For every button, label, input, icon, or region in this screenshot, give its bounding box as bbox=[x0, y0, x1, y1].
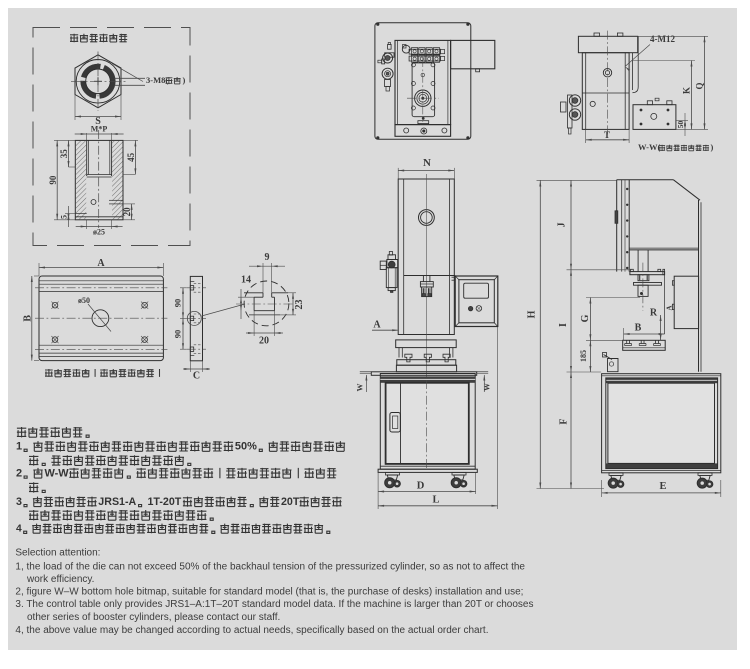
svg-text:23: 23 bbox=[294, 300, 305, 310]
svg-text:W-W: W-W bbox=[45, 467, 70, 479]
svg-text:4: 4 bbox=[16, 524, 22, 535]
svg-text:C: C bbox=[193, 370, 200, 381]
svg-text:1T-20T: 1T-20T bbox=[148, 496, 182, 508]
svg-text:A: A bbox=[666, 305, 674, 310]
svg-text:K: K bbox=[682, 87, 692, 94]
svg-text:90: 90 bbox=[172, 330, 182, 339]
svg-text:H: H bbox=[526, 310, 537, 318]
svg-text:T: T bbox=[604, 130, 610, 140]
svg-text:50: 50 bbox=[676, 121, 685, 129]
svg-text:90: 90 bbox=[48, 175, 58, 185]
svg-text:R: R bbox=[650, 307, 658, 318]
svg-text:3: 3 bbox=[16, 496, 22, 508]
svg-text:20: 20 bbox=[122, 207, 132, 217]
svg-text:20: 20 bbox=[259, 335, 269, 346]
svg-text:B: B bbox=[23, 315, 34, 322]
svg-text:D: D bbox=[417, 480, 425, 491]
svg-text:35: 35 bbox=[59, 149, 69, 159]
svg-text:A: A bbox=[373, 320, 381, 331]
svg-text:45: 45 bbox=[126, 152, 136, 162]
svg-text:3-M8(: 3-M8( bbox=[146, 75, 168, 85]
svg-text:2: 2 bbox=[16, 467, 22, 479]
svg-text:185: 185 bbox=[579, 350, 588, 362]
svg-text:other series of booster cylind: other series of booster cylinders, pleas… bbox=[27, 612, 280, 623]
svg-text:F: F bbox=[558, 418, 569, 424]
svg-text:9: 9 bbox=[265, 252, 270, 263]
svg-text:B: B bbox=[635, 323, 642, 334]
svg-text:3. The control table only prov: 3. The control table only provides JRS1–… bbox=[15, 599, 533, 610]
svg-text:1, the load of the die can not: 1, the load of the die can not exceed 50… bbox=[15, 562, 525, 573]
svg-text:W-W(: W-W( bbox=[638, 142, 661, 152]
svg-text:W: W bbox=[355, 384, 364, 392]
svg-text:ø50: ø50 bbox=[78, 296, 90, 305]
svg-text:Q: Q bbox=[695, 82, 705, 89]
svg-text:4, the above value may be chan: 4, the above value may be changed accord… bbox=[15, 625, 488, 636]
svg-text:5: 5 bbox=[59, 215, 68, 219]
svg-text:): ) bbox=[711, 142, 714, 152]
svg-text:Selection attention:: Selection attention: bbox=[15, 548, 100, 559]
svg-text:JRS1-A: JRS1-A bbox=[98, 496, 136, 508]
svg-text:work efficiency.: work efficiency. bbox=[26, 574, 94, 585]
svg-text:14: 14 bbox=[241, 274, 251, 285]
svg-text:M*P: M*P bbox=[91, 125, 108, 134]
svg-text:20T: 20T bbox=[281, 496, 300, 508]
svg-text:W: W bbox=[482, 383, 491, 391]
svg-text:J: J bbox=[556, 223, 567, 228]
svg-text:4-M12: 4-M12 bbox=[650, 34, 675, 44]
svg-text:ø25: ø25 bbox=[93, 227, 105, 236]
svg-text:G: G bbox=[580, 314, 591, 322]
svg-text:50%: 50% bbox=[235, 441, 257, 453]
svg-text:A: A bbox=[97, 258, 105, 269]
svg-text:L: L bbox=[432, 495, 439, 506]
svg-text:I: I bbox=[558, 323, 569, 327]
svg-text:90: 90 bbox=[172, 299, 182, 308]
svg-text:E: E bbox=[659, 481, 666, 492]
svg-text:): ) bbox=[183, 75, 186, 85]
svg-text:2, figure W–W bottom hole bitm: 2, figure W–W bottom hole bitmap, suitab… bbox=[15, 587, 523, 598]
svg-text:N: N bbox=[423, 157, 431, 169]
svg-text:1: 1 bbox=[16, 441, 22, 453]
